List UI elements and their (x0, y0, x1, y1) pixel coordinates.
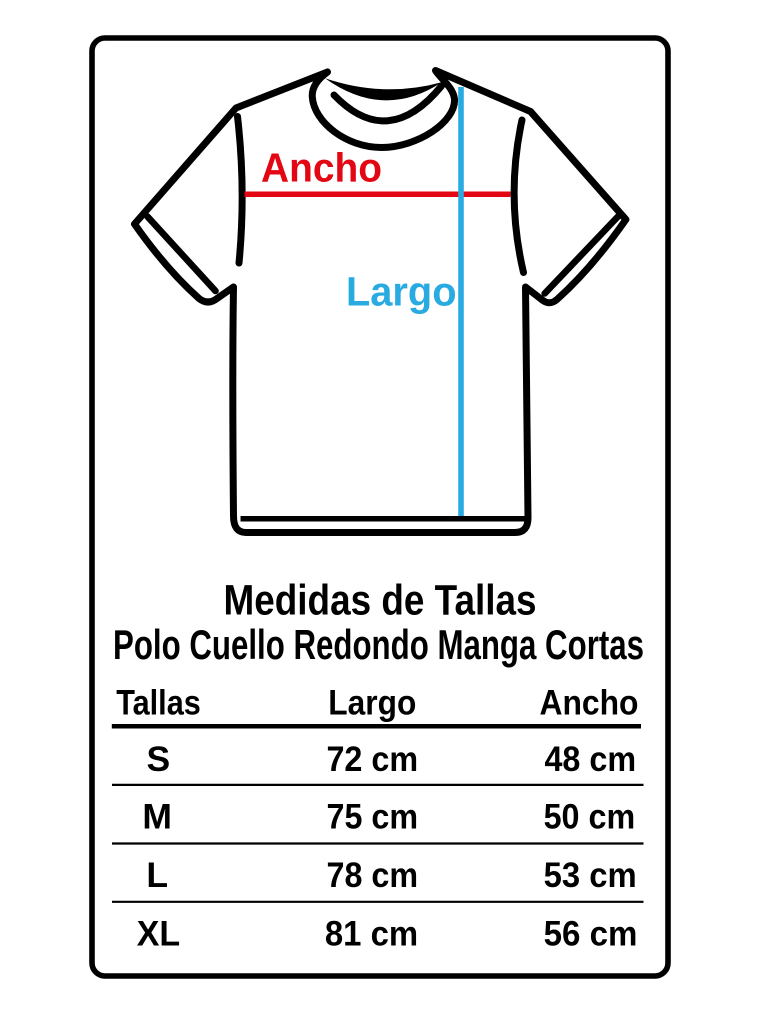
svg-text:Ancho: Ancho (540, 682, 639, 722)
svg-text:75 cm: 75 cm (327, 796, 419, 836)
svg-text:XL: XL (137, 913, 180, 953)
svg-text:53 cm: 53 cm (544, 855, 637, 895)
svg-text:Medidas de Tallas: Medidas de Tallas (224, 577, 537, 625)
svg-text:L: L (146, 855, 168, 895)
svg-text:Largo: Largo (346, 268, 457, 314)
svg-text:M: M (142, 796, 172, 836)
svg-text:78 cm: 78 cm (327, 855, 419, 895)
svg-text:Largo: Largo (328, 682, 416, 722)
svg-text:Tallas: Tallas (116, 682, 201, 722)
svg-text:48 cm: 48 cm (544, 739, 636, 779)
svg-text:56 cm: 56 cm (544, 913, 638, 953)
svg-text:72 cm: 72 cm (326, 739, 418, 779)
svg-text:Polo Cuello Redondo Manga Cort: Polo Cuello Redondo Manga Cortas (113, 621, 644, 668)
svg-text:Ancho: Ancho (261, 144, 382, 190)
svg-text:S: S (147, 739, 171, 779)
svg-text:50 cm: 50 cm (544, 796, 636, 836)
svg-text:81 cm: 81 cm (325, 913, 418, 953)
